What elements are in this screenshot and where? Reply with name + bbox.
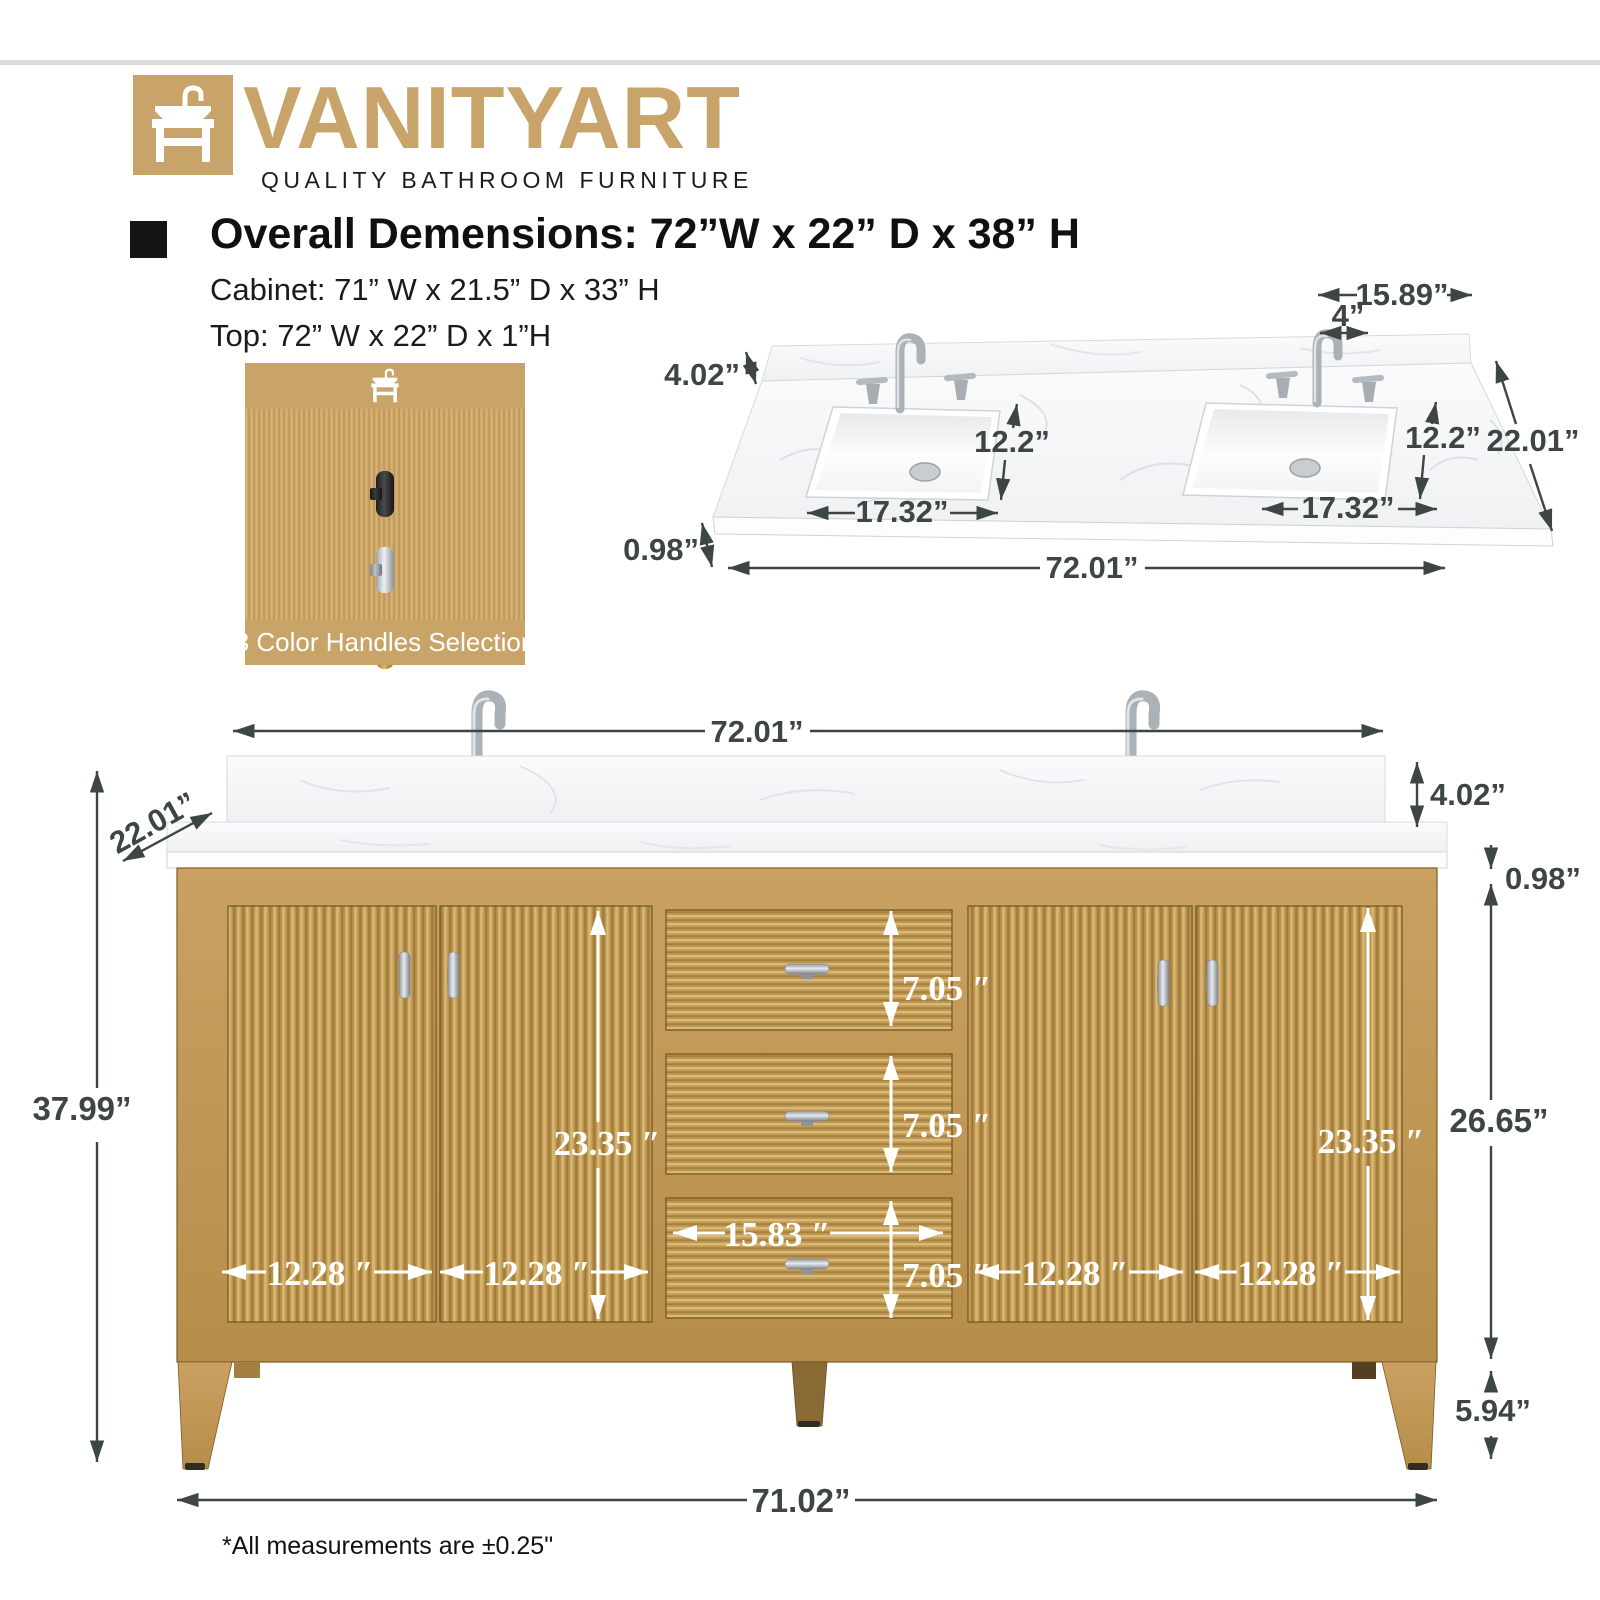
- handle-card-wood-swatch: [245, 409, 525, 620]
- handle-card-caption: 3 Color Handles Selection: [235, 627, 536, 658]
- dim-drawer-width: 15.83 ″: [724, 1215, 831, 1254]
- dim-leg-height: 5.94”: [1455, 1393, 1531, 1428]
- leg-front-left: [178, 1362, 232, 1469]
- sink-right: [1183, 403, 1397, 500]
- handle-option-black: [376, 471, 394, 517]
- dim-backsplash-height-top: 4.02”: [664, 357, 740, 392]
- dim-counter-thickness-front: 0.98”: [1505, 861, 1581, 896]
- front-countertop: [167, 822, 1447, 868]
- dim-drawer-height-1: 7.05 ″: [902, 969, 991, 1008]
- dim-overall-height: 37.99”: [32, 1090, 131, 1127]
- dim-backsplash-height-front: 4.02”: [1430, 777, 1506, 812]
- front-view-diagram: 72.01” 22.01” 4.02” 0.98” 37.99” 26.65” …: [0, 660, 1600, 1600]
- dim-base-width: 71.02”: [751, 1482, 850, 1519]
- dim-sink-width-right: 17.32”: [1301, 490, 1394, 525]
- dim-door-width-2: 12.28 ″: [484, 1254, 591, 1293]
- logo-faucet-curve: [185, 88, 201, 109]
- dim-cabinet-height: 26.65”: [1449, 1102, 1548, 1139]
- cabinet-legs: [178, 1362, 1436, 1470]
- handle-options-card: 3 Color Handles Selection: [245, 363, 525, 665]
- brand-tagline: QUALITY BATHROOM FURNITURE: [261, 167, 753, 194]
- dim-drawer-height-2: 7.05 ″: [902, 1106, 991, 1145]
- handle-option-chrome: [376, 547, 394, 593]
- dim-back-width: 15.89”: [1355, 277, 1448, 312]
- dim-sink-width-left: 17.32”: [855, 494, 948, 529]
- logo-table-top: [152, 119, 214, 128]
- dim-door-height-right: 23.35 ″: [1318, 1122, 1425, 1161]
- door-2-handle: [447, 952, 459, 998]
- countertop-diagram: 15.89” 4” 4.02” 12.2” 12.2” 22.01” 17.32…: [600, 262, 1600, 592]
- dim-faucet-spread: 4”: [1332, 298, 1365, 333]
- top-dimensions-line: Top: 72” W x 22” D x 1”H: [210, 318, 551, 354]
- brand-wordmark: VANITYART: [243, 68, 741, 168]
- logo-table-leg-left: [156, 128, 164, 162]
- front-backsplash: [227, 756, 1385, 822]
- logo-table-shelf: [164, 138, 202, 146]
- drain-left: [910, 463, 940, 481]
- leg-front-center: [792, 1362, 827, 1426]
- dim-drawer-height-3: 7.05 ″: [902, 1256, 991, 1295]
- dim-counter-thickness-top: 0.98”: [623, 532, 699, 567]
- dim-counter-width: 72.01”: [1045, 550, 1138, 585]
- door-4-handle: [1206, 960, 1218, 1006]
- handle-card-header: [245, 363, 525, 409]
- dim-counter-depth: 22.01”: [1486, 423, 1579, 458]
- dim-door-height-left: 23.35 ″: [554, 1124, 661, 1163]
- overall-dimensions-title: Overall Demensions: 72”W x 22” D x 38” H: [210, 210, 1080, 259]
- logo-table-leg-right: [202, 128, 210, 162]
- dim-top-width: 72.01”: [710, 714, 803, 749]
- measurement-tolerance-note: *All measurements are ±0.25": [222, 1532, 553, 1561]
- handle-card-footer: 3 Color Handles Selection: [245, 620, 525, 665]
- leg-back-left: [234, 1362, 260, 1378]
- cabinet-dimensions-line: Cabinet: 71” W x 21.5” D x 33” H: [210, 272, 660, 308]
- dim-door-width-3: 12.28 ″: [1022, 1254, 1129, 1293]
- title-bullet-square: [130, 221, 167, 258]
- door-1-handle: [398, 952, 410, 998]
- vanity-logo-icon-small: [363, 364, 407, 408]
- door-3-handle: [1157, 960, 1169, 1006]
- drain-right: [1290, 459, 1320, 477]
- dim-sink-depth-left: 12.2”: [974, 424, 1050, 459]
- dim-sink-depth-right: 12.2”: [1405, 420, 1481, 455]
- leg-back-right: [1352, 1362, 1376, 1379]
- page-divider-line: [0, 60, 1600, 65]
- dim-door-width-1: 12.28 ″: [267, 1254, 374, 1293]
- vanity-logo-icon: [133, 75, 233, 175]
- leg-front-right: [1382, 1362, 1436, 1469]
- sink-left: [806, 407, 1000, 500]
- dim-door-width-4: 12.28 ″: [1238, 1254, 1345, 1293]
